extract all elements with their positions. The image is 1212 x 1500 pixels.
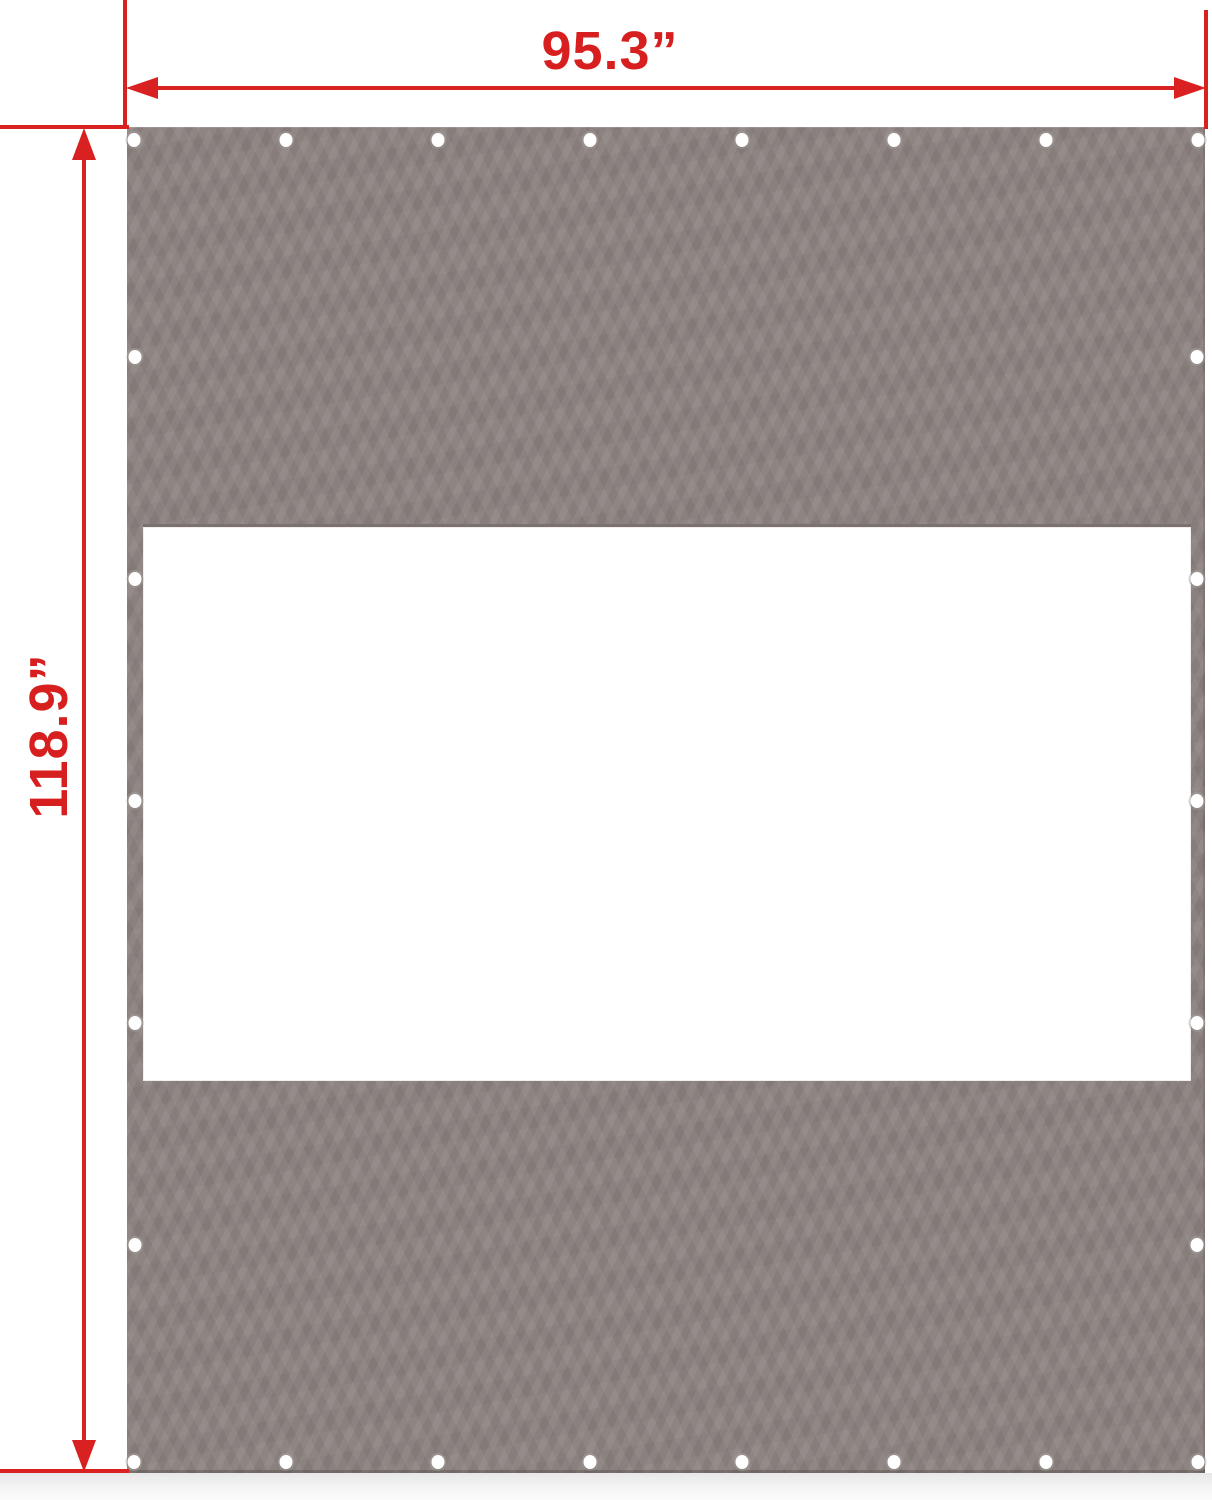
left-edge-grommet — [129, 1238, 142, 1252]
left-edge-grommet — [129, 572, 142, 586]
width-arrowhead-left — [126, 77, 158, 99]
bottom-edge-grommet — [888, 1455, 901, 1469]
height-arrowhead-bottom — [72, 1440, 96, 1472]
width-extension-line-left — [123, 0, 127, 129]
top-edge-grommet — [584, 133, 597, 147]
bottom-edge-grommet — [1192, 1455, 1205, 1469]
bottom-edge-grommet — [736, 1455, 749, 1469]
bottom-edge-grommet — [1040, 1455, 1053, 1469]
top-edge-grommet — [888, 133, 901, 147]
bottom-edge-grommet — [280, 1455, 293, 1469]
width-dimension-label: 95.3” — [541, 24, 678, 78]
height-extension-line-bottom — [0, 1469, 129, 1473]
right-edge-grommet — [1191, 1016, 1204, 1030]
top-edge-grommet — [280, 133, 293, 147]
bottom-edge-grommet — [584, 1455, 597, 1469]
top-edge-grommet — [432, 133, 445, 147]
right-edge-grommet — [1191, 350, 1204, 364]
right-edge-grommet — [1191, 794, 1204, 808]
bottom-edge-grommet — [432, 1455, 445, 1469]
floor-shadow — [0, 1473, 1212, 1500]
top-edge-grommet — [1192, 133, 1205, 147]
height-arrowhead-top — [72, 128, 96, 160]
width-extension-line-right — [1204, 10, 1208, 129]
window-cutout — [143, 524, 1191, 1081]
right-edge-grommet — [1191, 572, 1204, 586]
left-edge-grommet — [129, 794, 142, 808]
left-edge-grommet — [129, 350, 142, 364]
height-extension-line-top — [0, 125, 129, 129]
width-arrowhead-right — [1174, 77, 1206, 99]
height-dimension-line — [82, 140, 86, 1462]
top-edge-grommet — [128, 133, 141, 147]
bottom-edge-grommet — [128, 1455, 141, 1469]
tarp-panel — [127, 127, 1205, 1473]
top-edge-grommet — [1040, 133, 1053, 147]
top-edge-grommet — [736, 133, 749, 147]
width-dimension-line — [140, 86, 1195, 90]
height-dimension-label: 118.9” — [22, 653, 76, 818]
right-edge-grommet — [1191, 1238, 1204, 1252]
left-edge-grommet — [129, 1016, 142, 1030]
